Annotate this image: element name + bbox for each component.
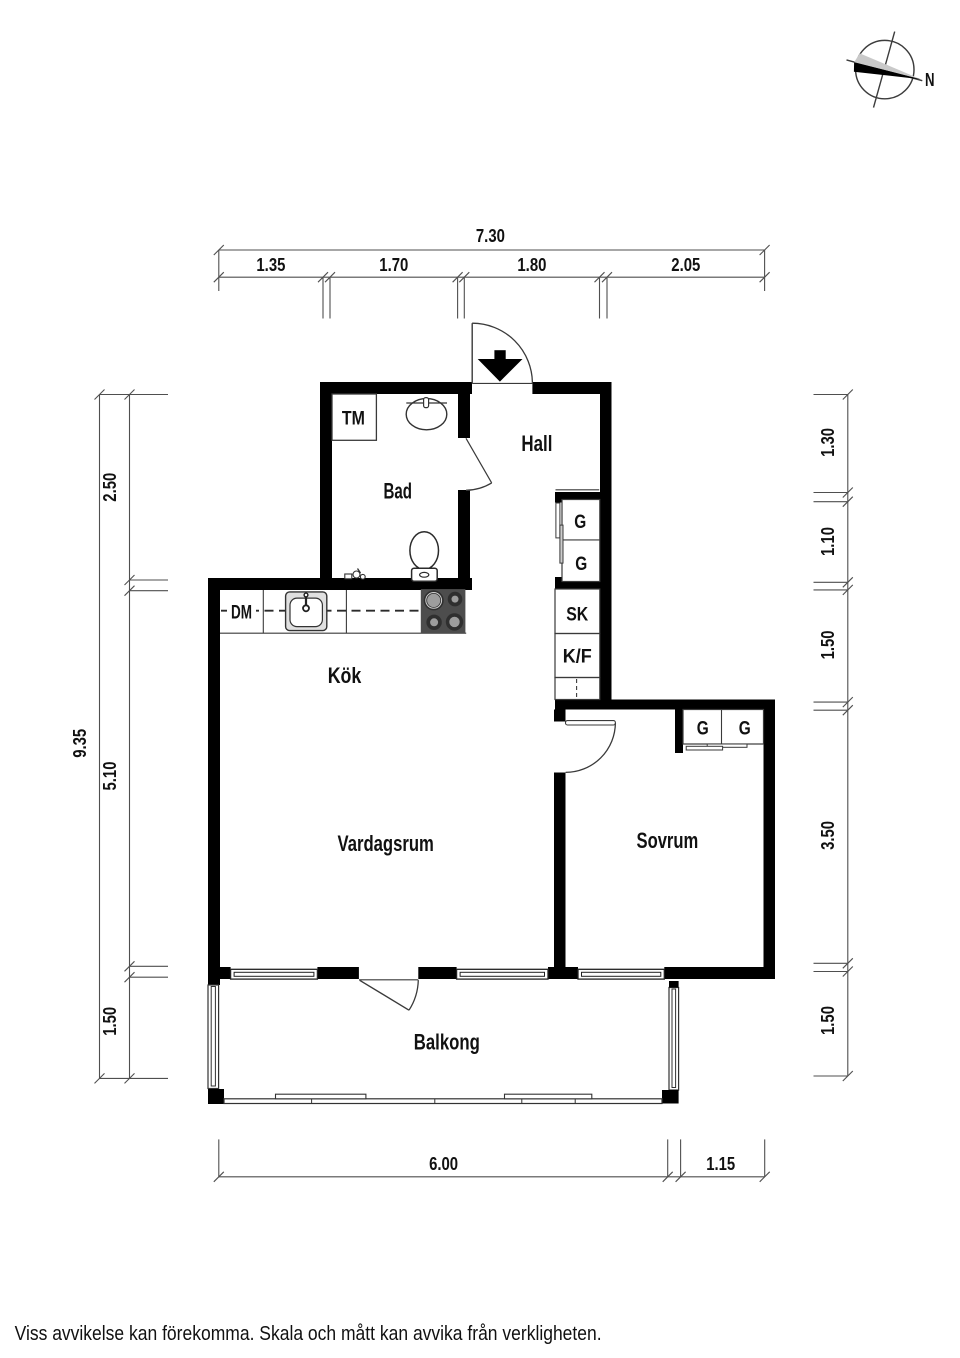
- svg-text:G: G: [574, 512, 586, 533]
- svg-text:1.35: 1.35: [256, 255, 285, 275]
- svg-text:TM: TM: [342, 408, 365, 429]
- svg-text:1.50: 1.50: [818, 630, 838, 659]
- svg-text:1.10: 1.10: [818, 527, 838, 556]
- svg-text:Bad: Bad: [383, 478, 412, 503]
- svg-text:G: G: [575, 554, 587, 575]
- svg-text:N: N: [925, 70, 935, 90]
- svg-text:2.05: 2.05: [671, 255, 700, 275]
- svg-text:K/F: K/F: [563, 646, 592, 667]
- svg-text:7.30: 7.30: [476, 226, 505, 246]
- svg-text:1.50: 1.50: [818, 1006, 838, 1035]
- svg-text:1.50: 1.50: [100, 1007, 120, 1036]
- svg-text:5.10: 5.10: [100, 762, 120, 791]
- svg-text:G: G: [697, 719, 709, 740]
- svg-text:2.50: 2.50: [100, 473, 120, 502]
- svg-text:1.70: 1.70: [379, 255, 408, 275]
- svg-text:1.80: 1.80: [517, 255, 546, 275]
- svg-text:G: G: [739, 719, 751, 740]
- svg-text:1.15: 1.15: [706, 1154, 735, 1174]
- svg-text:Kök: Kök: [328, 663, 362, 688]
- svg-text:Hall: Hall: [521, 431, 552, 456]
- svg-text:Vardagsrum: Vardagsrum: [338, 831, 434, 856]
- svg-text:Balkong: Balkong: [414, 1029, 480, 1054]
- svg-text:9.35: 9.35: [70, 729, 90, 758]
- svg-text:Viss avvikelse kan förekomma.: Viss avvikelse kan förekomma. Skala och …: [15, 1323, 602, 1345]
- svg-text:DM: DM: [231, 602, 252, 623]
- svg-text:Sovrum: Sovrum: [637, 828, 699, 853]
- svg-text:6.00: 6.00: [429, 1154, 458, 1174]
- svg-text:3.50: 3.50: [818, 821, 838, 850]
- svg-text:1.30: 1.30: [818, 428, 838, 457]
- svg-text:SK: SK: [566, 604, 588, 625]
